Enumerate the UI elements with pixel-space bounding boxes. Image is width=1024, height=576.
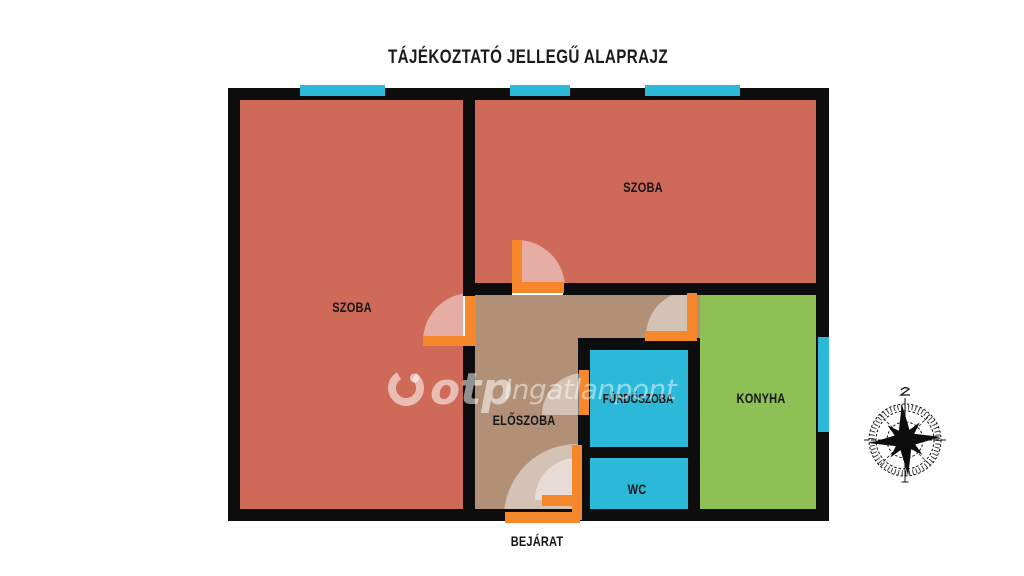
svg-text:TÁJÉKOZTATÓ JELLEGŰ ALAPRAJZ: TÁJÉKOZTATÓ JELLEGŰ ALAPRAJZ (388, 45, 668, 67)
window-top-1 (300, 85, 385, 96)
page-title: TÁJÉKOZTATÓ JELLEGŰ ALAPRAJZ (388, 45, 668, 67)
svg-text:BEJÁRAT: BEJÁRAT (511, 533, 564, 549)
entrance-label: BEJÁRAT (511, 533, 564, 549)
wall-divider-upper (463, 100, 475, 296)
room-label-szoba-right: SZOBA (623, 180, 663, 195)
window-right (818, 337, 829, 432)
window-top-2 (510, 85, 570, 96)
door-bejarat (505, 512, 580, 523)
room-label-konyha: KONYHA (737, 391, 786, 406)
svg-text:KONYHA: KONYHA (737, 391, 786, 406)
window-top-3 (645, 85, 740, 96)
svg-text:SZOBA: SZOBA (623, 180, 663, 195)
watermark-brand: otp (430, 364, 513, 415)
svg-text:WC: WC (628, 482, 647, 497)
room-label-szoba-left: SZOBA (332, 300, 372, 315)
compass-north-finial (901, 388, 910, 395)
watermark-name: Ingatlanpont (504, 373, 678, 406)
wall-left (228, 88, 240, 521)
wall-hall-top-a (475, 283, 512, 295)
svg-text:SZOBA: SZOBA (332, 300, 372, 315)
floorplan-canvas: TÁJÉKOZTATÓ JELLEGŰ ALAPRAJZ (0, 0, 1024, 576)
compass-rose-icon (864, 388, 946, 482)
room-label-wc: WC (628, 482, 647, 497)
wall-right (816, 88, 829, 521)
